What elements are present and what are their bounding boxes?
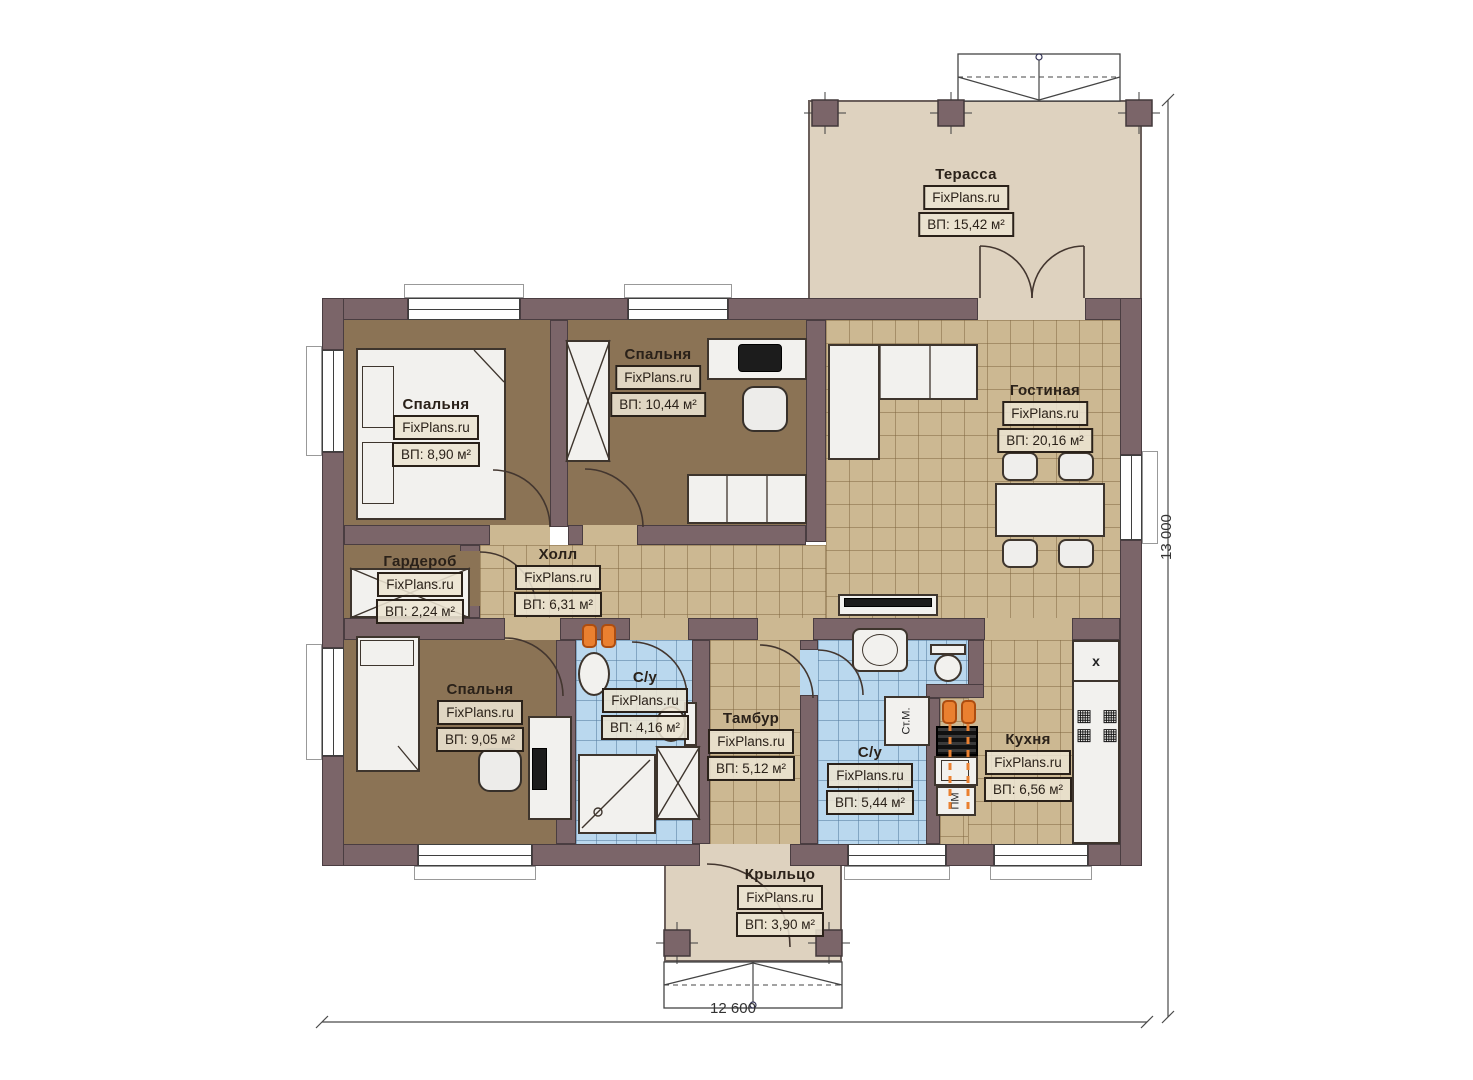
wall	[800, 695, 818, 844]
chair-icon	[1058, 539, 1094, 568]
brand-box: FixPlans.ru	[602, 688, 688, 713]
window	[848, 844, 946, 866]
dimension-width-label: 12 600	[710, 1000, 756, 1017]
area-box: ВП: 2,24 м²	[376, 599, 464, 624]
window	[994, 844, 1088, 866]
label-living: Гостиная FixPlans.ru ВП: 20,16 м²	[997, 382, 1093, 453]
wall	[1120, 298, 1142, 455]
area-box: ВП: 20,16 м²	[997, 428, 1093, 453]
wall	[946, 844, 994, 866]
sink-bowl-icon	[941, 760, 969, 781]
brand-box: FixPlans.ru	[827, 763, 913, 788]
label-kitchen: Кухня FixPlans.ru ВП: 6,56 м²	[984, 731, 1072, 802]
window-sill	[844, 866, 950, 880]
brand-box: FixPlans.ru	[437, 700, 523, 725]
label-bathroom-2: С/у FixPlans.ru ВП: 5,44 м²	[826, 744, 914, 815]
label-bathroom-1: С/у FixPlans.ru ВП: 4,16 м²	[601, 669, 689, 740]
window-sill	[1142, 451, 1158, 544]
area-box: ВП: 9,05 м²	[436, 727, 524, 752]
area-box: ВП: 6,31 м²	[514, 592, 602, 617]
stove-burners-icon: ▦▦▦▦	[1076, 706, 1118, 744]
window-sill	[306, 644, 322, 760]
tv-icon	[844, 598, 932, 607]
window-sill	[404, 284, 524, 298]
wall	[806, 320, 826, 542]
window	[322, 350, 344, 452]
wall	[728, 298, 978, 320]
radiator-icon	[942, 700, 957, 724]
brand-box: FixPlans.ru	[708, 729, 794, 754]
area-box: ВП: 15,42 м²	[918, 212, 1014, 237]
area-box: ВП: 8,90 м²	[392, 442, 480, 467]
counter-sink-icon: x	[1072, 640, 1120, 682]
label-hall: Холл FixPlans.ru ВП: 6,31 м²	[514, 546, 602, 617]
brand-box: FixPlans.ru	[377, 572, 463, 597]
door-opening	[583, 525, 637, 545]
wall	[688, 618, 758, 640]
wall	[1120, 540, 1142, 866]
pillow-icon	[362, 366, 394, 428]
label-wardrobe: Гардероб FixPlans.ru ВП: 2,24 м²	[376, 553, 464, 624]
label-bedroom-3: Спальня FixPlans.ru ВП: 9,05 м²	[436, 681, 524, 752]
door-opening	[758, 618, 813, 640]
window	[418, 844, 532, 866]
area-box: ВП: 5,12 м²	[707, 756, 795, 781]
brand-box: FixPlans.ru	[923, 185, 1009, 210]
sofa-corner-icon	[828, 344, 880, 460]
window-sill	[624, 284, 732, 298]
wall	[800, 640, 818, 650]
window-sill	[414, 866, 536, 880]
area-box: ВП: 4,16 м²	[601, 715, 689, 740]
door-opening	[630, 618, 688, 640]
window	[1120, 455, 1142, 540]
brand-box: FixPlans.ru	[737, 885, 823, 910]
wall	[568, 525, 583, 545]
radiator-icon	[961, 700, 976, 724]
sink-bowl-icon	[862, 634, 898, 666]
terrace-steps	[958, 54, 1120, 101]
wall	[532, 844, 700, 866]
wall	[926, 684, 984, 698]
label-terrace: Терасса FixPlans.ru ВП: 15,42 м²	[918, 166, 1014, 237]
label-porch: Крыльцо FixPlans.ru ВП: 3,90 м²	[736, 866, 824, 937]
floor-plan: Ст.М. ПМ x ▦▦▦▦	[0, 0, 1473, 1080]
window	[408, 298, 520, 320]
washing-machine-icon: Ст.М.	[884, 696, 930, 746]
window-sill	[306, 346, 322, 456]
chair-icon	[1058, 452, 1094, 481]
printer-icon	[738, 344, 782, 372]
area-box: ВП: 3,90 м²	[736, 912, 824, 937]
door-opening	[505, 618, 560, 640]
chair-icon	[1002, 539, 1038, 568]
shower-icon	[578, 754, 656, 834]
closet-icon	[656, 746, 700, 820]
office-chair-icon	[742, 386, 788, 432]
window	[628, 298, 728, 320]
chair-icon	[1002, 452, 1038, 481]
office-chair-icon	[478, 748, 522, 792]
wall	[637, 525, 806, 545]
wall	[322, 298, 344, 350]
brand-box: FixPlans.ru	[515, 565, 601, 590]
dining-table-icon	[995, 483, 1105, 537]
radiator-icon	[582, 624, 597, 648]
toilet-icon	[934, 654, 962, 682]
brand-box: FixPlans.ru	[985, 750, 1071, 775]
wall	[790, 844, 848, 866]
sofa-icon	[687, 474, 807, 524]
wall	[344, 525, 490, 545]
area-box: ВП: 10,44 м²	[610, 392, 706, 417]
dishwasher-icon: ПМ	[936, 786, 976, 816]
window-sill	[990, 866, 1092, 880]
terrace-door-opening	[978, 298, 1085, 320]
window	[322, 648, 344, 756]
label-vestibule: Тамбур FixPlans.ru ВП: 5,12 м²	[707, 710, 795, 781]
wall	[520, 298, 628, 320]
dimension-height-label: 13 000	[1158, 514, 1175, 560]
entrance-door-opening	[700, 844, 790, 866]
door-opening	[490, 525, 550, 545]
area-box: ВП: 5,44 м²	[826, 790, 914, 815]
radiator-icon	[601, 624, 616, 648]
pillow-icon	[362, 442, 394, 504]
wall	[1072, 618, 1120, 640]
label-bedroom-2: Спальня FixPlans.ru ВП: 10,44 м²	[610, 346, 706, 417]
label-bedroom-1: Спальня FixPlans.ru ВП: 8,90 м²	[392, 396, 480, 467]
brand-box: FixPlans.ru	[393, 415, 479, 440]
area-box: ВП: 6,56 м²	[984, 777, 1072, 802]
wall	[322, 452, 344, 648]
brand-box: FixPlans.ru	[1002, 401, 1088, 426]
pillow-icon	[360, 640, 414, 666]
wall	[322, 756, 344, 866]
door-opening	[800, 650, 818, 695]
wardrobe-icon	[566, 340, 610, 462]
kitchen-opening	[985, 618, 1072, 640]
monitor-icon	[532, 748, 547, 790]
oven-icon	[936, 726, 978, 756]
brand-box: FixPlans.ru	[615, 365, 701, 390]
